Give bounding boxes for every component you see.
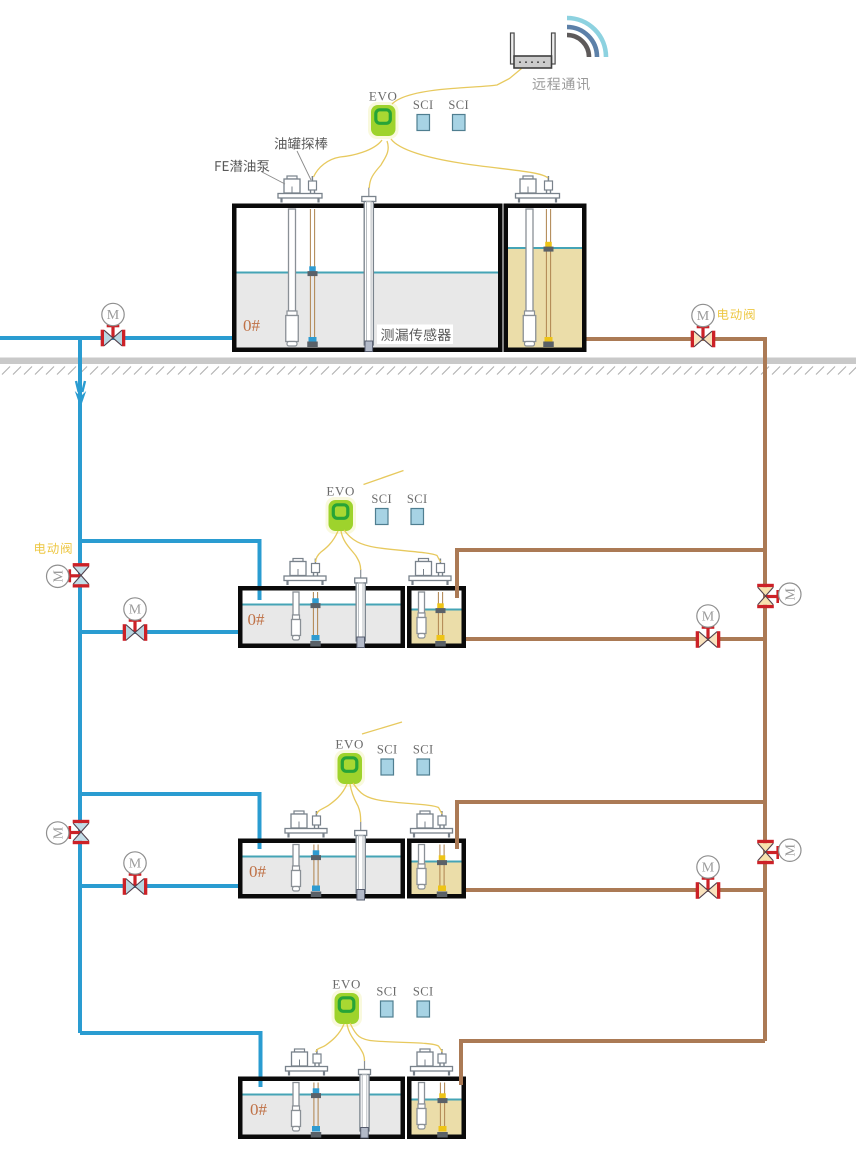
svg-text:M: M: [697, 309, 710, 324]
svg-text:M: M: [129, 603, 142, 618]
svg-text:SCI: SCI: [376, 985, 397, 999]
svg-text:SCI: SCI: [413, 98, 434, 112]
svg-text:0#: 0#: [248, 610, 266, 629]
svg-text:M: M: [107, 308, 120, 323]
svg-text:SCI: SCI: [413, 985, 434, 999]
svg-text:M: M: [51, 826, 66, 839]
svg-text:0#: 0#: [243, 316, 261, 335]
svg-text:SCI: SCI: [371, 492, 392, 506]
svg-text:M: M: [783, 843, 798, 856]
svg-text:SCI: SCI: [377, 743, 398, 757]
svg-text:M: M: [51, 570, 66, 583]
svg-text:EVO: EVO: [335, 737, 364, 752]
svg-text:0#: 0#: [249, 862, 267, 881]
svg-text:M: M: [129, 857, 142, 872]
svg-text:EVO: EVO: [369, 89, 398, 104]
svg-text:0#: 0#: [250, 1100, 268, 1119]
svg-text:EVO: EVO: [326, 484, 355, 499]
svg-text:SCI: SCI: [413, 743, 434, 757]
svg-text:M: M: [702, 861, 715, 876]
svg-text:M: M: [783, 587, 798, 600]
svg-text:M: M: [702, 610, 715, 625]
svg-text:SCI: SCI: [407, 492, 428, 506]
svg-text:SCI: SCI: [448, 98, 469, 112]
svg-text:EVO: EVO: [332, 977, 361, 992]
